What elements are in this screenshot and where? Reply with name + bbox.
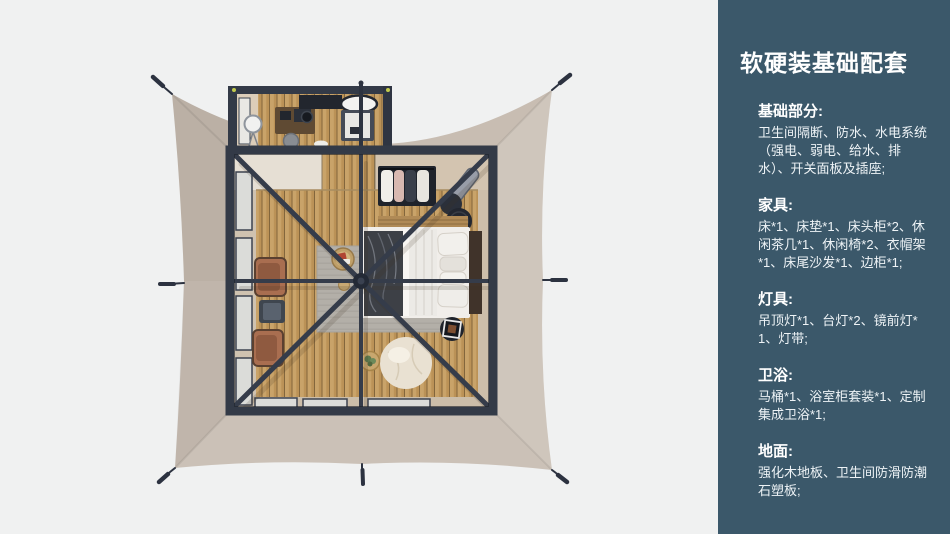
section-bathroom: 卫浴: 马桶*1、浴室柜套装*1、定制集成卫浴*1;	[758, 366, 930, 424]
recessed-panel	[299, 95, 342, 109]
section-flooring-heading: 地面:	[758, 442, 930, 462]
center-pole	[359, 81, 364, 153]
pillows	[437, 232, 468, 307]
shower-unit	[341, 110, 374, 141]
coffee-table	[259, 300, 285, 323]
section-bathroom-heading: 卫浴:	[758, 366, 930, 386]
section-furniture-heading: 家具:	[758, 196, 930, 216]
spec-panel: 软硬装基础配套 基础部分: 卫生间隔断、防水、水电系统（强电、弱电、给水、排水）…	[718, 0, 950, 534]
section-bathroom-body: 马桶*1、浴室柜套装*1、定制集成卫浴*1;	[758, 388, 930, 424]
floorplan-rendering	[0, 0, 718, 534]
section-furniture-body: 床*1、床垫*1、床头柜*2、休闲茶几*1、休闲椅*2、衣帽架*1、床尾沙发*1…	[758, 218, 930, 272]
section-furniture: 家具: 床*1、床垫*1、床头柜*2、休闲茶几*1、休闲椅*2、衣帽架*1、床尾…	[758, 196, 930, 272]
beam-hub-cap	[358, 278, 365, 285]
plant-table	[361, 352, 380, 371]
section-basics: 基础部分: 卫生间隔断、防水、水电系统（强电、弱电、给水、排水）、开关面板及插座…	[758, 102, 930, 178]
section-lighting-heading: 灯具:	[758, 290, 930, 310]
side-table	[440, 317, 464, 341]
section-flooring-body: 强化木地板、卫生间防滑防潮石塑板;	[758, 464, 930, 500]
section-lighting: 灯具: 吊顶灯*1、台灯*2、镜前灯*1、灯带;	[758, 290, 930, 348]
slide: 软硬装基础配套 基础部分: 卫生间隔断、防水、水电系统（强电、弱电、给水、排水）…	[0, 0, 950, 534]
section-flooring: 地面: 强化木地板、卫生间防滑防潮石塑板;	[758, 442, 930, 500]
floorplan-svg	[0, 0, 718, 534]
clothes-rack	[378, 166, 436, 206]
bathroom-annex	[228, 86, 392, 152]
section-basics-body: 卫生间隔断、防水、水电系统（强电、弱电、给水、排水）、开关面板及插座;	[758, 124, 930, 178]
section-lighting-body: 吊顶灯*1、台灯*2、镜前灯*1、灯带;	[758, 312, 930, 348]
headboard	[469, 231, 482, 314]
section-basics-heading: 基础部分:	[758, 102, 930, 122]
panel-title: 软硬装基础配套	[740, 44, 930, 78]
